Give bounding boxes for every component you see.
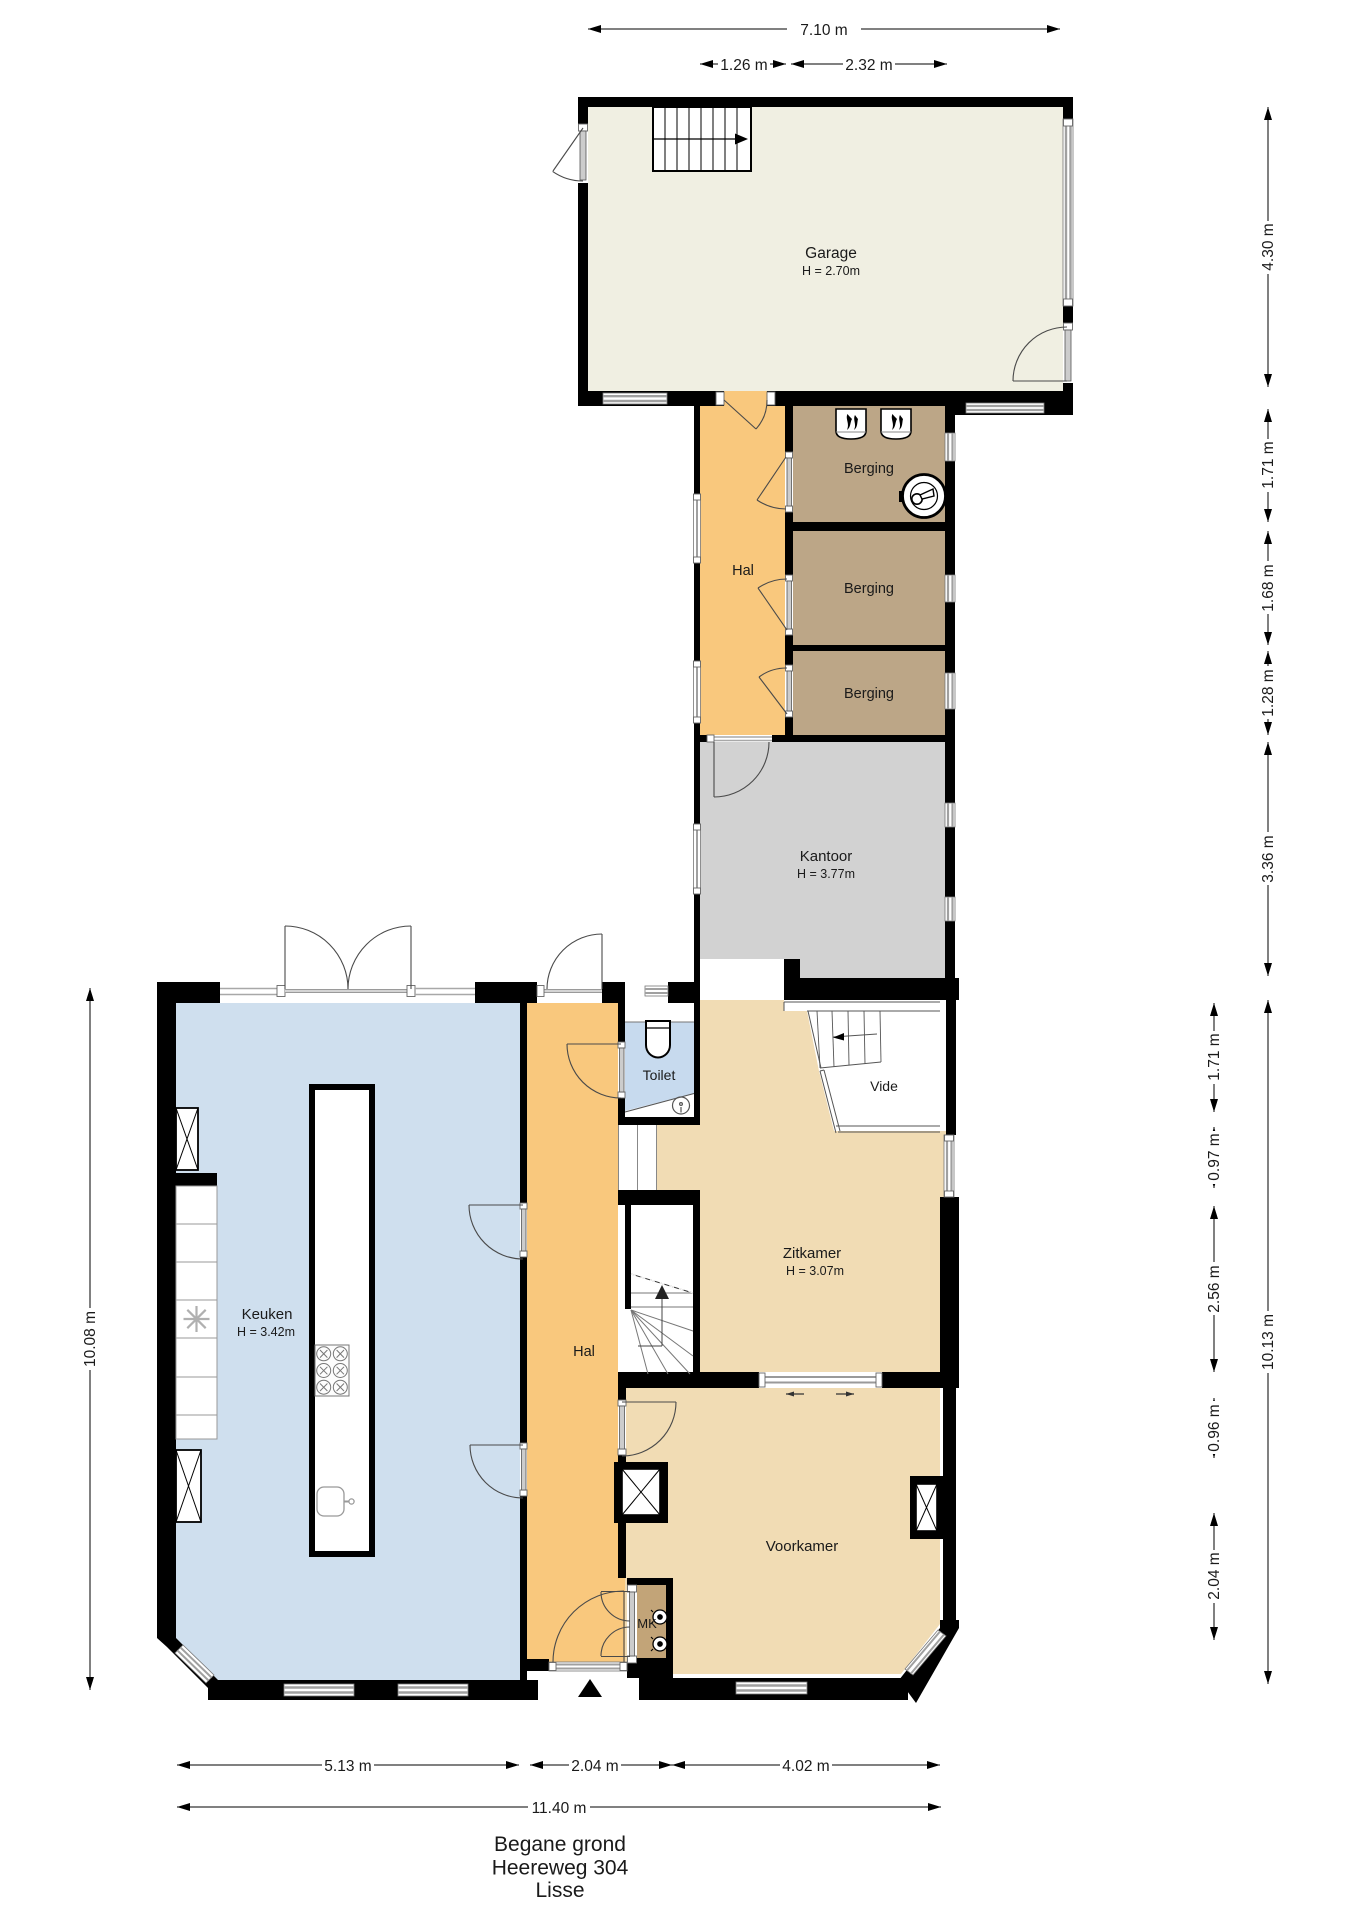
svg-text:Berging: Berging — [844, 581, 894, 597]
svg-text:2.04 m: 2.04 m — [571, 1758, 618, 1775]
svg-text:H = 3.07m: H = 3.07m — [786, 1264, 844, 1278]
svg-text:Begane grond: Begane grond — [494, 1833, 626, 1856]
svg-text:Berging: Berging — [844, 686, 894, 702]
svg-text:Lisse: Lisse — [535, 1879, 584, 1902]
svg-text:Heereweg 304: Heereweg 304 — [492, 1857, 629, 1880]
svg-text:Hal: Hal — [573, 1344, 595, 1360]
svg-text:H = 3.42m: H = 3.42m — [237, 1325, 295, 1339]
svg-text:1.71 m: 1.71 m — [1206, 1033, 1223, 1080]
svg-text:7.10 m: 7.10 m — [800, 22, 847, 39]
svg-text:1.26 m: 1.26 m — [720, 57, 767, 74]
svg-text:0.96 m: 0.96 m — [1206, 1404, 1223, 1451]
svg-text:Berging: Berging — [844, 461, 894, 477]
svg-text:H = 2.70m: H = 2.70m — [802, 264, 860, 278]
svg-text:4.02 m: 4.02 m — [782, 1758, 829, 1775]
svg-text:MK: MK — [637, 1616, 657, 1631]
svg-text:5.13 m: 5.13 m — [324, 1758, 371, 1775]
svg-text:Keuken: Keuken — [242, 1306, 293, 1323]
svg-text:11.40 m: 11.40 m — [532, 1800, 587, 1817]
svg-text:H = 3.77m: H = 3.77m — [797, 867, 855, 881]
svg-text:Kantoor: Kantoor — [800, 848, 853, 865]
svg-text:0.97 m: 0.97 m — [1206, 1133, 1223, 1180]
svg-text:2.04 m: 2.04 m — [1206, 1552, 1223, 1599]
svg-text:Voorkamer: Voorkamer — [766, 1538, 839, 1555]
svg-text:Zitkamer: Zitkamer — [783, 1245, 841, 1262]
svg-text:Hal: Hal — [732, 563, 754, 579]
svg-text:10.08 m: 10.08 m — [82, 1311, 99, 1367]
svg-text:Toilet: Toilet — [643, 1067, 676, 1083]
svg-text:Garage: Garage — [805, 245, 857, 262]
svg-text:1.28 m: 1.28 m — [1260, 669, 1277, 716]
svg-text:1.71 m: 1.71 m — [1260, 441, 1277, 488]
svg-text:Vide: Vide — [870, 1078, 898, 1094]
svg-text:10.13 m: 10.13 m — [1260, 1314, 1277, 1370]
svg-text:3.36 m: 3.36 m — [1260, 835, 1277, 882]
svg-text:2.56 m: 2.56 m — [1206, 1265, 1223, 1312]
svg-text:2.32 m: 2.32 m — [845, 57, 892, 74]
svg-text:1.68 m: 1.68 m — [1260, 564, 1277, 611]
svg-text:4.30 m: 4.30 m — [1260, 223, 1277, 270]
